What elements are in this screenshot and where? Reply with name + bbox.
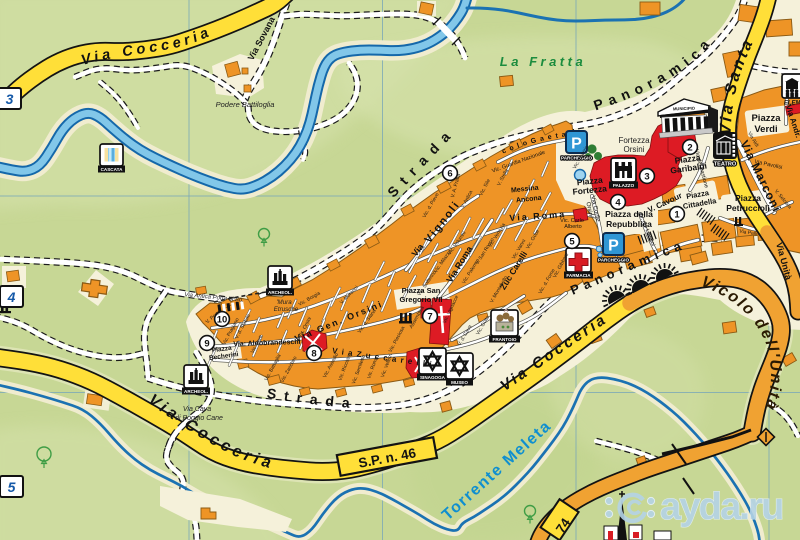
- svg-text:3: 3: [644, 171, 649, 182]
- svg-text:P: P: [608, 238, 619, 255]
- svg-text:PALAZZO: PALAZZO: [613, 183, 635, 188]
- svg-text:Etrusche: Etrusche: [274, 306, 299, 313]
- svg-text:SINAGOGA: SINAGOGA: [420, 375, 446, 380]
- svg-text:ARCHEOL.: ARCHEOL.: [268, 290, 292, 295]
- svg-text:5: 5: [8, 479, 16, 495]
- svg-text:Podere Battiloglia: Podere Battiloglia: [216, 100, 275, 109]
- svg-text:La Fratta: La Fratta: [500, 54, 586, 69]
- svg-text:Fortezza: Fortezza: [618, 136, 650, 145]
- svg-text:FRANTOIO: FRANTOIO: [493, 337, 517, 342]
- svg-text:Via Cava: Via Cava: [183, 406, 211, 413]
- svg-text:Piazza della: Piazza della: [605, 209, 653, 219]
- svg-text:CASCATA: CASCATA: [101, 167, 123, 172]
- svg-text:'Mura: 'Mura: [276, 299, 292, 306]
- svg-text:ARCHEOL.: ARCHEOL.: [184, 389, 208, 394]
- svg-text:2: 2: [687, 142, 692, 153]
- svg-text:8: 8: [311, 348, 316, 359]
- svg-text:4: 4: [615, 197, 621, 208]
- svg-text:Verdi: Verdi: [754, 124, 777, 135]
- svg-text:9: 9: [204, 338, 209, 349]
- svg-text:Piazza: Piazza: [735, 193, 761, 203]
- svg-text:Petruccioli: Petruccioli: [726, 203, 769, 213]
- svg-text:P: P: [571, 136, 582, 153]
- svg-text:3: 3: [6, 91, 14, 107]
- svg-text:MUNICIPIO: MUNICIPIO: [673, 106, 696, 112]
- svg-text:Alberto: Alberto: [564, 224, 581, 230]
- svg-text:ayda.ru: ayda.ru: [660, 486, 783, 528]
- svg-text:MUSEO: MUSEO: [451, 380, 468, 385]
- svg-text:6: 6: [447, 168, 452, 179]
- svg-text:4: 4: [7, 289, 16, 305]
- svg-text:di Poggio Cane: di Poggio Cane: [175, 415, 223, 422]
- svg-text:Orsini: Orsini: [624, 145, 645, 154]
- svg-text:1: 1: [674, 209, 680, 220]
- svg-text:TEATRO: TEATRO: [714, 162, 737, 168]
- svg-text:5: 5: [569, 236, 575, 247]
- svg-text:7: 7: [427, 311, 432, 322]
- svg-text:Piazza: Piazza: [751, 113, 781, 124]
